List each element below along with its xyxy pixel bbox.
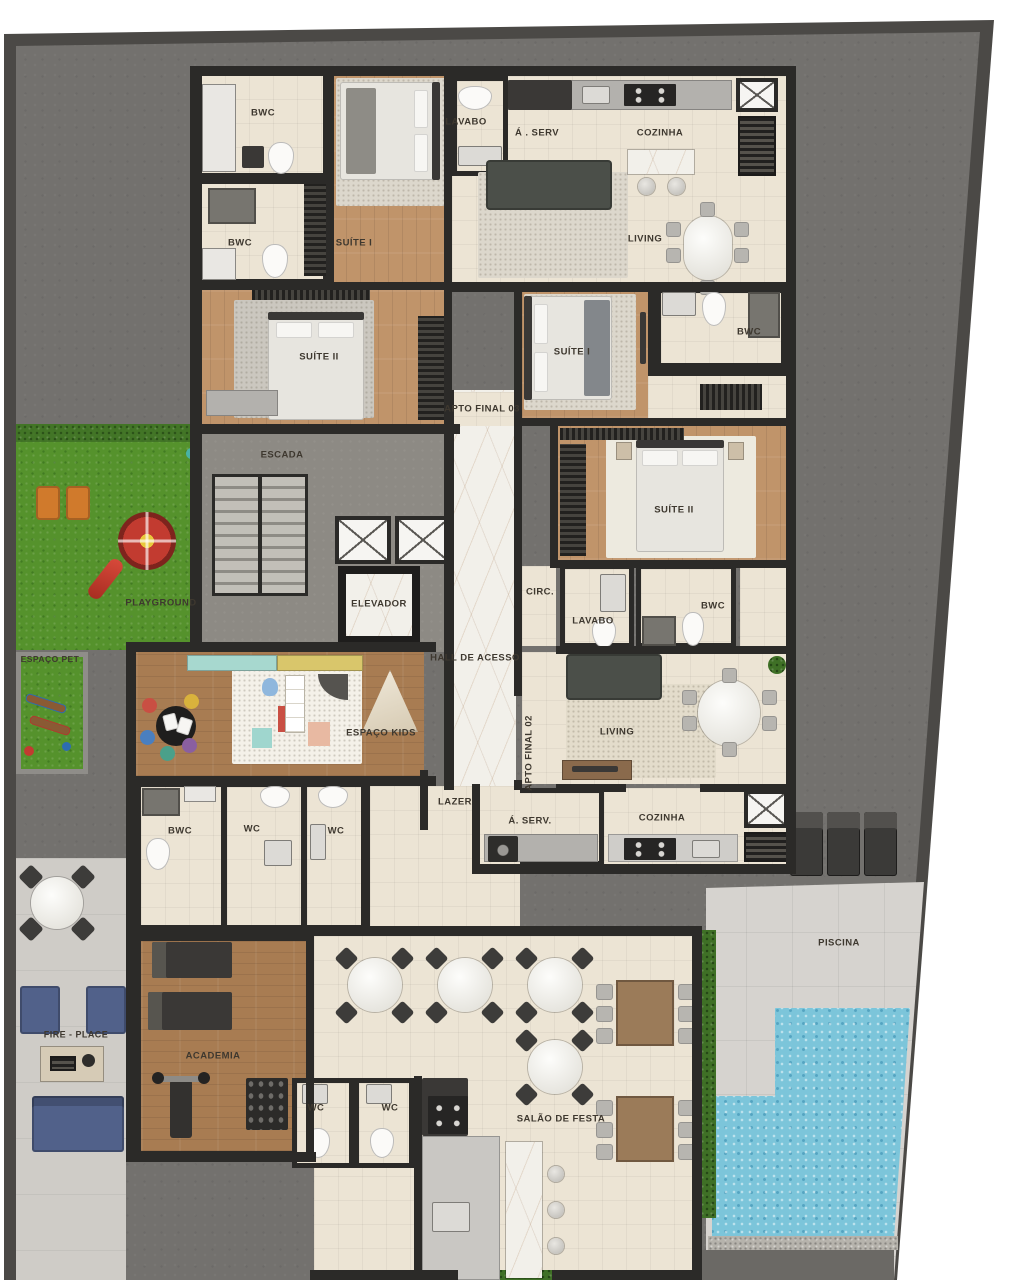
room-closet-b (740, 564, 786, 648)
bed-pillow (534, 352, 548, 392)
washbasin (366, 1084, 392, 1104)
washbasin (600, 574, 626, 612)
chair (596, 1122, 613, 1138)
chair (722, 742, 737, 757)
chair (682, 716, 697, 731)
chair (666, 248, 681, 263)
chair (734, 248, 749, 263)
kitchen-sink (582, 86, 610, 104)
bed-pillow (414, 90, 428, 128)
wall (126, 642, 436, 652)
wall (190, 66, 796, 76)
area-label-playground: PLAYGROUND (125, 598, 196, 608)
area-label-fire-place: FIRE - PLACE (44, 1031, 108, 1040)
chair (700, 202, 715, 217)
playground-lawn (16, 424, 212, 650)
room-label-lavabo-a: LAVABO (445, 117, 486, 127)
dumbbell-rack (246, 1078, 288, 1130)
nightstand (616, 442, 632, 460)
tv-panel (640, 312, 646, 364)
shaft-hatch (736, 78, 778, 112)
chair (762, 690, 777, 705)
wall (514, 286, 522, 696)
wall (334, 926, 702, 936)
dining-table (684, 216, 732, 280)
wall (310, 1270, 458, 1280)
playmat-hopscotch (286, 676, 304, 732)
bed-headboard (636, 440, 724, 448)
wall (786, 66, 796, 874)
kids-chair (182, 738, 197, 753)
wall (190, 424, 460, 434)
room-label-wc-salao-1: WC (308, 1103, 325, 1113)
party-rect-table (616, 980, 674, 1046)
desk (206, 390, 278, 416)
wall (362, 776, 370, 932)
playground-bench (66, 486, 90, 520)
kids-bench-teal (187, 655, 277, 671)
nightstand (728, 442, 744, 460)
wall (700, 784, 796, 792)
playground-tree-row (16, 424, 212, 442)
kids-chair (160, 746, 175, 761)
wall (556, 560, 796, 568)
bed-headboard (268, 312, 364, 320)
wall (126, 1152, 316, 1162)
cooktop (428, 1096, 468, 1134)
chair (722, 668, 737, 683)
wall (196, 176, 328, 184)
room-label-salao: SALÃO DE FESTA (517, 1114, 605, 1124)
bed-pillow (318, 322, 354, 338)
wall (444, 390, 454, 790)
patio-round-table (31, 877, 83, 929)
sofa (566, 654, 662, 700)
chair (596, 1144, 613, 1160)
party-round-table (528, 958, 582, 1012)
ventilation-grill (744, 832, 788, 862)
chair (596, 984, 613, 1000)
wall (692, 926, 702, 1280)
kids-bench-yellow (277, 655, 363, 671)
washer (488, 836, 518, 862)
wall (190, 282, 452, 290)
wall (472, 784, 480, 874)
playground-bench (36, 486, 60, 520)
room-label-bwc-common: BWC (168, 826, 192, 836)
room-label-wc-common-1: WC (244, 824, 261, 834)
party-round-table (348, 958, 402, 1012)
room-label-bwc-a2: BWC (228, 238, 252, 248)
kitchen-cabinet (508, 80, 572, 110)
room-label-academia: ACADEMIA (186, 1051, 241, 1061)
sun-lounger (864, 812, 897, 876)
room-label-suite2-a: SUÍTE II (299, 352, 339, 362)
bar-stool (668, 178, 685, 195)
vanity (184, 786, 216, 802)
wall (552, 1270, 700, 1280)
wall (648, 368, 796, 376)
room-label-suite1-a: SUÍTE I (336, 238, 372, 248)
cooktop (624, 838, 676, 860)
floor-plan: BWC LAVABO Á . SERV COZINHA LIVING BWC S… (0, 0, 1024, 1280)
elevator-shaft (335, 516, 391, 564)
room-label-lavabo-b: LAVABO (572, 616, 613, 626)
access-hall (446, 390, 516, 790)
kids-chair (142, 698, 157, 713)
room-label-suite2-b: SUÍTE II (654, 505, 694, 515)
room-label-bwc-b1: BWC (737, 327, 761, 337)
wall (550, 426, 558, 568)
room-label-suite1-b: SUÍTE I (554, 347, 590, 357)
room-label-cozinha-b: COZINHA (639, 813, 685, 823)
chair (762, 716, 777, 731)
wall (306, 936, 314, 1158)
playmat-tile (252, 728, 272, 748)
area-label-piscina: PISCINA (818, 938, 860, 948)
wall (414, 1076, 422, 1280)
party-round-table (438, 958, 492, 1012)
room-label-bwc-b2: BWC (701, 601, 725, 611)
shower (642, 616, 676, 646)
room-label-living-a: LIVING (628, 234, 662, 244)
cooktop (624, 84, 676, 106)
label-apto-final-02: APTO FINAL 02 (524, 715, 534, 791)
room-label-wc-salao-2: WC (382, 1103, 399, 1113)
label-apto-final-03: APTO FINAL 03 (444, 404, 520, 414)
barbell-plate (198, 1072, 210, 1084)
pet-ball (24, 746, 34, 756)
wall (190, 424, 202, 652)
wall (420, 770, 428, 830)
plant-pot (768, 656, 786, 674)
wall (556, 784, 626, 792)
bed-pillow (534, 304, 548, 344)
weight-bench (170, 1080, 192, 1138)
kitchen-sink (692, 840, 720, 858)
chair (596, 1006, 613, 1022)
room-label-living-b: LIVING (600, 727, 634, 737)
room-label-circ: CIRC. (526, 587, 554, 597)
shaft-hatch (744, 790, 788, 828)
bed-throw (346, 88, 376, 174)
bed-pillow (682, 450, 718, 466)
area-label-espaco-pet: ESPAÇO PET (21, 655, 80, 664)
bar-counter (506, 1142, 542, 1278)
bed-pillow (642, 450, 678, 466)
bed-pillow (414, 134, 428, 172)
bed-headboard (432, 82, 440, 180)
room-label-espaco-kids: ESPAÇO KIDS (346, 728, 416, 738)
party-rect-table (616, 1096, 674, 1162)
bar-stool (638, 178, 655, 195)
kids-chair (184, 694, 199, 709)
area-label-lazer: LAZER (438, 797, 472, 807)
room-label-aserv-a: Á . SERV (515, 128, 559, 138)
pet-cone (62, 742, 71, 751)
wardrobe (418, 316, 444, 420)
chair (682, 690, 697, 705)
barbell-plate (152, 1072, 164, 1084)
dresser (700, 384, 762, 410)
wall (190, 66, 202, 432)
wall (514, 780, 522, 790)
chair (734, 222, 749, 237)
wall (514, 418, 796, 426)
wall (126, 776, 436, 786)
washbasin (310, 824, 326, 860)
wall (126, 642, 136, 1162)
room-label-bwc-a1: BWC (251, 108, 275, 118)
pool-back-path (702, 1250, 894, 1280)
treadmill (152, 942, 232, 978)
wardrobe (560, 444, 586, 556)
fire-pit-kettle (82, 1054, 95, 1067)
patio-armchair (20, 986, 60, 1034)
ventilation-grill (738, 116, 776, 176)
vanity (202, 84, 236, 172)
elevator-shaft (395, 516, 451, 564)
patio-sofa (32, 1096, 124, 1152)
dining-table-oval (698, 680, 760, 746)
chair (666, 222, 681, 237)
party-round-table (528, 1040, 582, 1094)
wardrobe (560, 428, 684, 440)
room-label-escada: ESCADA (261, 450, 304, 460)
playmat-tile (308, 722, 330, 746)
bar-stool (548, 1238, 564, 1254)
stair-rail (258, 474, 262, 596)
sofa (486, 160, 612, 210)
patio-armchair (86, 986, 126, 1034)
wall (452, 282, 796, 292)
bed-pillow (276, 322, 312, 338)
room-label-cozinha-a: COZINHA (637, 128, 683, 138)
sun-lounger (827, 812, 860, 876)
wall (472, 864, 796, 874)
room-circ-b (522, 566, 556, 646)
wall (648, 286, 656, 376)
shower (208, 188, 256, 224)
playmat-tile (262, 678, 278, 696)
chair (596, 1028, 613, 1044)
fire-pit-grate (50, 1056, 76, 1071)
kitchen-sink (432, 1202, 470, 1232)
room-label-aserv-b: Á. SERV. (508, 816, 551, 826)
room-label-hall: HALL DE ACESSO (430, 653, 520, 663)
vanity (202, 248, 236, 280)
playground-carousel (118, 512, 176, 570)
tv (572, 766, 618, 772)
bar-stool (548, 1166, 564, 1182)
washbasin (662, 292, 696, 316)
treadmill (148, 992, 232, 1030)
kids-chair (140, 730, 155, 745)
washbasin (264, 840, 292, 866)
room-label-elevador: ELEVADOR (351, 599, 407, 609)
kitchen-island (628, 150, 694, 174)
bed-headboard (524, 296, 532, 400)
room-label-wc-common-2: WC (328, 826, 345, 836)
washer (242, 146, 264, 168)
wall (556, 646, 796, 654)
bar-stool (548, 1202, 564, 1218)
shower (142, 788, 180, 816)
pool-gravel-strip (708, 1236, 898, 1250)
